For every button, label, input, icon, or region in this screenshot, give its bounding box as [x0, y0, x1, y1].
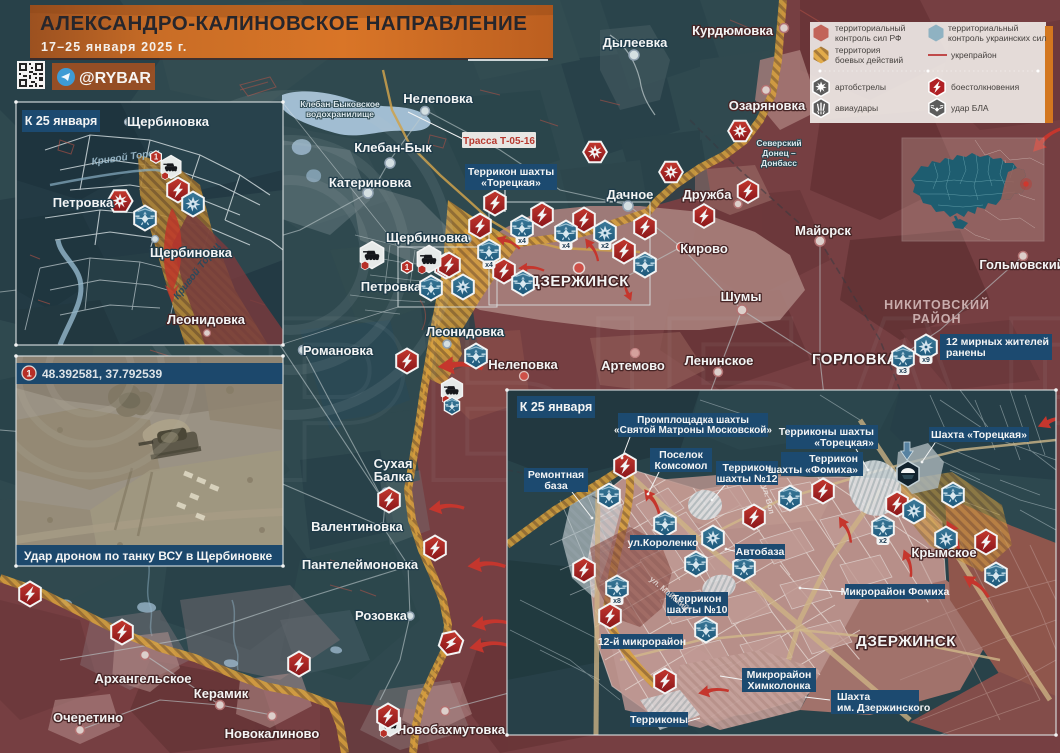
svg-text:артобстрелы: артобстрелы [835, 82, 886, 92]
svg-text:территория: территория [835, 45, 881, 55]
svg-text:боевых действий: боевых действий [835, 55, 903, 65]
svg-text:территориальный: территориальный [948, 23, 1019, 33]
svg-text:17–25 января 2025 г.: 17–25 января 2025 г. [41, 40, 188, 54]
svg-text:АЛЕКСАНДРО-КАЛИНОВСКОЕ НАПРАВЛ: АЛЕКСАНДРО-КАЛИНОВСКОЕ НАПРАВЛЕНИЕ [40, 12, 527, 35]
svg-text:контроль сил РФ: контроль сил РФ [835, 33, 902, 43]
svg-text:территориальный: территориальный [835, 23, 906, 33]
svg-text:контроль украинских сил: контроль украинских сил [948, 33, 1046, 43]
svg-text:укрепрайон: укрепрайон [951, 50, 997, 60]
svg-text:@RYBAR: @RYBAR [79, 70, 151, 87]
svg-text:удар БЛА: удар БЛА [951, 103, 989, 113]
svg-text:авиаудары: авиаудары [835, 103, 878, 113]
svg-text:боестолкновения: боестолкновения [951, 82, 1020, 92]
